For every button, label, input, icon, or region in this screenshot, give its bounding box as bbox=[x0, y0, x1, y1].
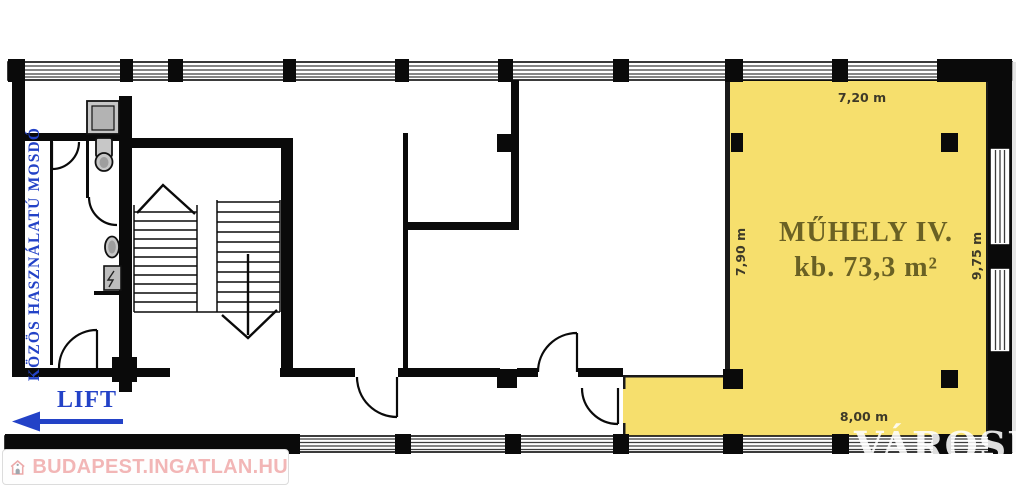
room-left-wall bbox=[725, 79, 730, 374]
door-arc bbox=[89, 197, 117, 225]
door-arc bbox=[52, 142, 79, 169]
column-pier bbox=[283, 59, 296, 82]
column-pier bbox=[613, 59, 629, 82]
lift-arrow-icon bbox=[12, 412, 123, 432]
floor-plan-page: 7,20 m 7,90 m 9,75 m 8,00 m MŰHELY IV. k… bbox=[0, 0, 1024, 487]
column-pier bbox=[723, 434, 743, 454]
column-pier bbox=[941, 370, 958, 388]
column-pier bbox=[168, 59, 183, 82]
portal-watermark-text: BUDAPEST.INGATLAN.HU bbox=[32, 456, 288, 479]
corridor-wall bbox=[280, 368, 355, 377]
column-pier bbox=[941, 133, 958, 152]
partition-wall bbox=[511, 80, 519, 230]
stair-up-arrow-icon bbox=[137, 185, 195, 214]
corridor-wall bbox=[137, 368, 170, 377]
door-arc bbox=[582, 388, 618, 424]
door-arc bbox=[357, 377, 397, 417]
toilet-bowl-inner bbox=[100, 157, 109, 168]
sink-inner bbox=[108, 241, 116, 254]
electric-panel-icon bbox=[104, 266, 121, 290]
column-pier bbox=[120, 59, 133, 82]
shelf bbox=[94, 291, 123, 295]
partition-wall bbox=[404, 222, 519, 230]
lift-label: LIFT bbox=[57, 387, 117, 413]
column-pier bbox=[731, 133, 743, 152]
portal-watermark: BUDAPEST.INGATLAN.HU bbox=[2, 449, 289, 485]
room-right-line bbox=[986, 80, 988, 437]
wall-right bbox=[988, 62, 1012, 452]
dim-right-label: 9,75 m bbox=[969, 232, 984, 280]
room-fill-extension bbox=[623, 376, 727, 437]
room-name-label: MŰHELY IV. bbox=[779, 216, 953, 248]
stairwell-left-wall bbox=[119, 96, 132, 392]
fixtures bbox=[87, 101, 123, 295]
door-arc bbox=[59, 330, 97, 368]
column-pier bbox=[395, 434, 411, 454]
column-pier bbox=[497, 134, 513, 152]
column-pier bbox=[112, 357, 137, 382]
washroom-label: KÖZÖS HASZNÁLATÚ MOSDÓ bbox=[26, 127, 43, 381]
staircase bbox=[134, 185, 280, 338]
corridor-wall bbox=[398, 368, 500, 377]
column-pier bbox=[497, 369, 517, 388]
room-area-label: kb. 73,3 m² bbox=[794, 252, 938, 283]
column-pier bbox=[613, 434, 629, 454]
house-icon bbox=[10, 454, 25, 481]
room-extension-top-line bbox=[623, 375, 727, 378]
door-arc bbox=[538, 333, 577, 372]
dim-top-label: 7,20 m bbox=[838, 90, 886, 105]
column-pier bbox=[395, 59, 409, 82]
dim-left-label: 7,90 m bbox=[733, 228, 748, 276]
wc-partition-thin bbox=[86, 141, 89, 198]
floor-plan-canvas: 7,20 m 7,90 m 9,75 m 8,00 m MŰHELY IV. k… bbox=[0, 0, 1024, 487]
corridor-wall bbox=[578, 368, 623, 377]
column-pier bbox=[498, 59, 513, 82]
corridor-wall bbox=[517, 368, 538, 377]
agency-watermark-text: VÁROSI bbox=[854, 427, 1024, 465]
wall-left bbox=[12, 62, 25, 375]
partition-wall-thin bbox=[403, 133, 408, 372]
stairwell-right-wall bbox=[281, 148, 293, 377]
stair-down-arrow-icon bbox=[222, 254, 277, 338]
agency-watermark: VÁROSI bbox=[846, 421, 1024, 471]
stairwell-top-wall bbox=[132, 138, 293, 148]
column-pier bbox=[832, 59, 848, 82]
room-extension-left-line bbox=[623, 376, 626, 389]
counter-basin bbox=[92, 106, 114, 130]
column-pier bbox=[725, 59, 743, 82]
washroom-partition-thin bbox=[50, 141, 53, 365]
column-pier bbox=[723, 369, 743, 389]
image-edge-strip bbox=[1012, 62, 1016, 452]
stair-treads-left bbox=[134, 212, 197, 302]
column-pier bbox=[505, 434, 521, 454]
